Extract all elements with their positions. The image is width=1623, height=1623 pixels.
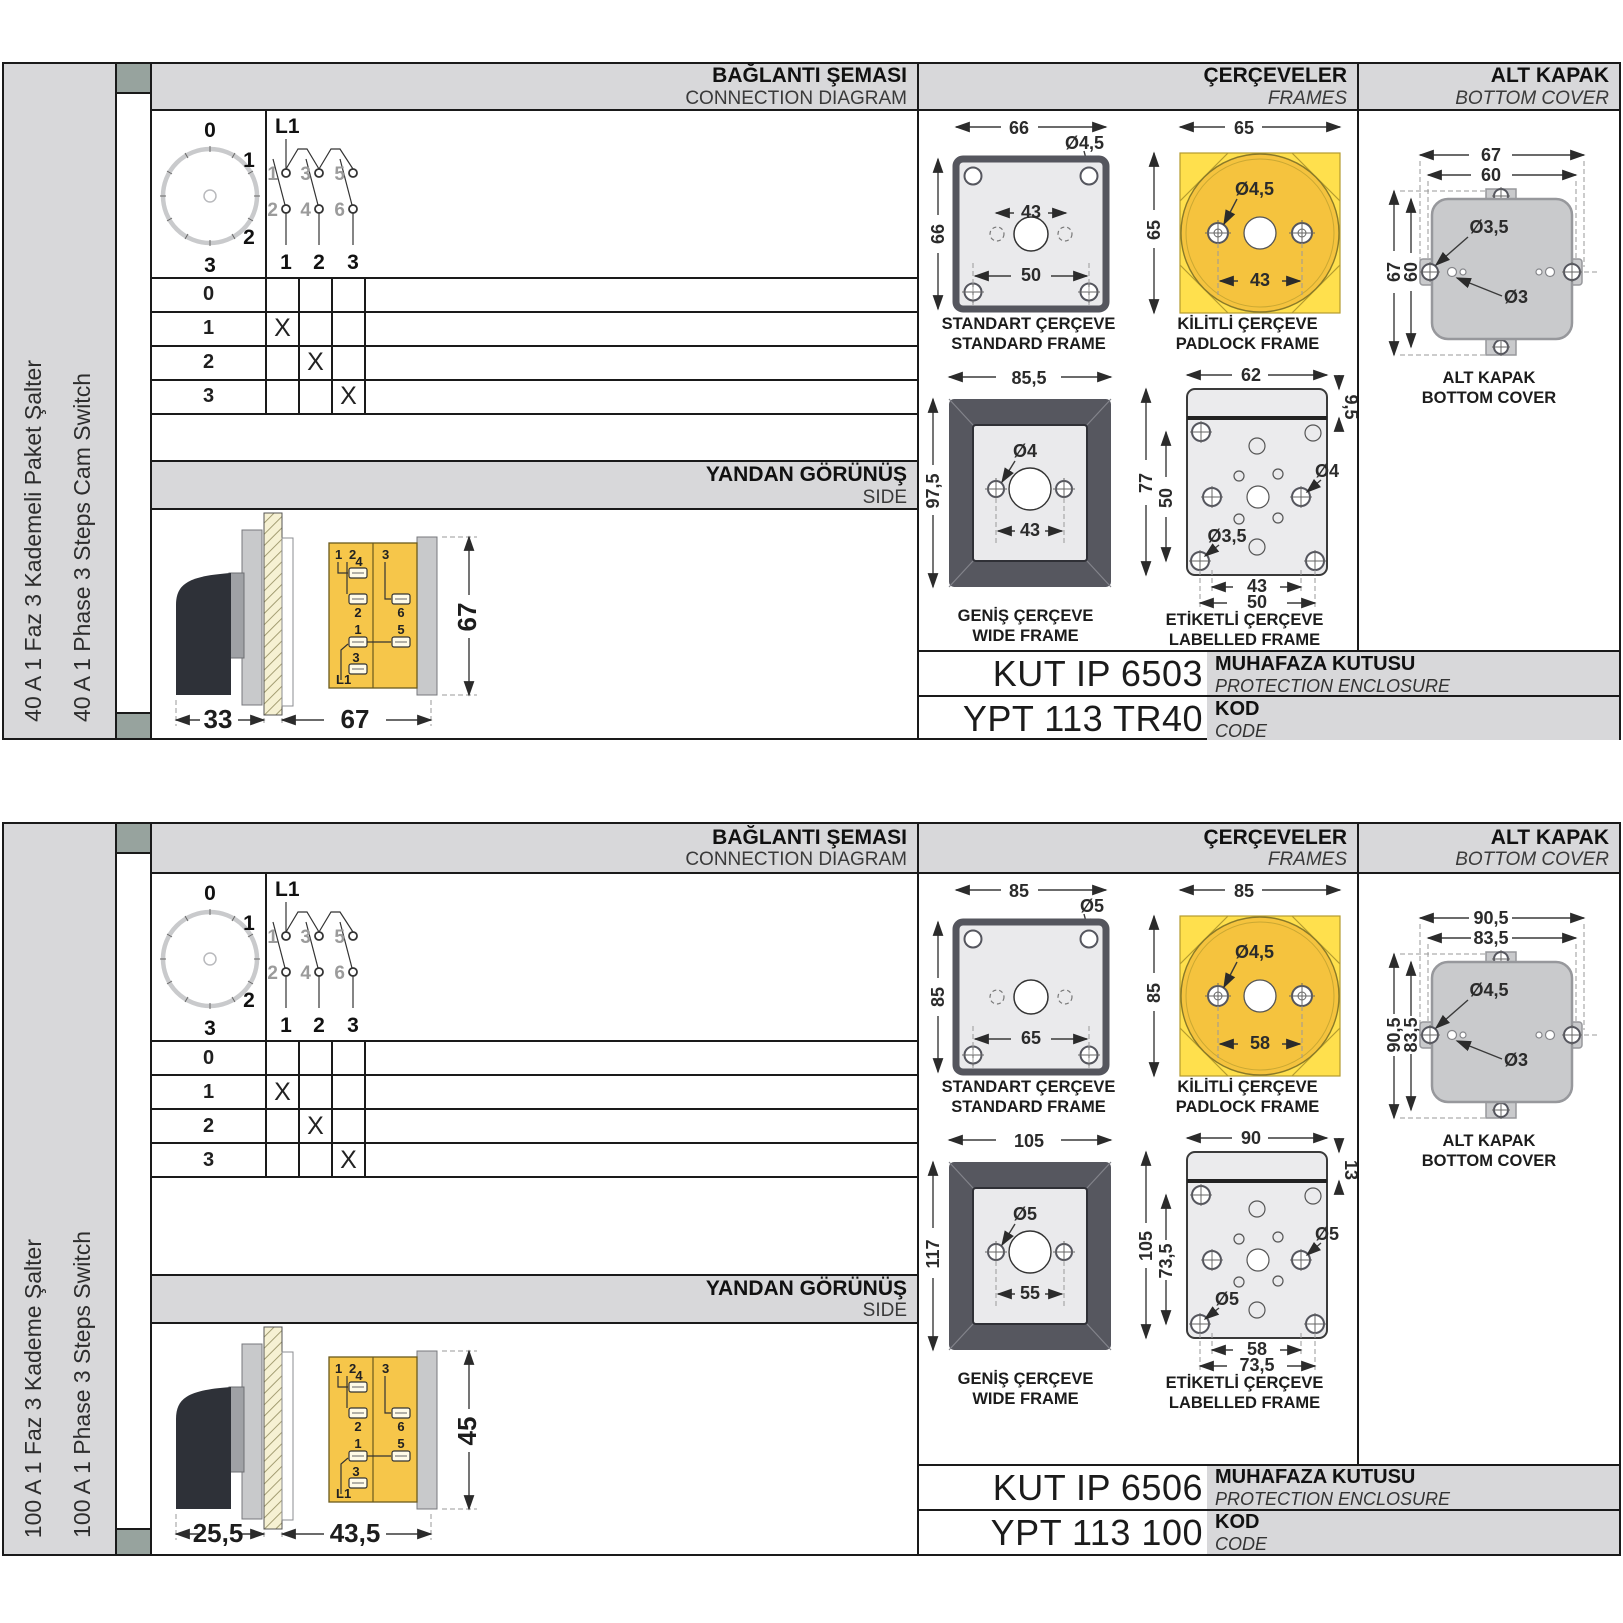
header-bottom-cover: ALT KAPAK BOTTOM COVER bbox=[1359, 64, 1619, 109]
svg-text:33: 33 bbox=[204, 704, 233, 734]
product-title-english: 100 A 1 Phase 3 Steps Switch bbox=[69, 1231, 96, 1538]
svg-text:5: 5 bbox=[334, 164, 345, 185]
frames-column: 85 Ø5 85 bbox=[919, 874, 1359, 1464]
labelled-frame-cell: 62 77 50 bbox=[1132, 361, 1357, 651]
svg-text:Ø5: Ø5 bbox=[1080, 896, 1104, 916]
product-label-tr: KOD bbox=[1215, 698, 1611, 721]
header-connection-diagram: BAĞLANTI ŞEMASI CONNECTION DIAGRAM bbox=[152, 64, 919, 109]
binder-strip bbox=[117, 64, 152, 738]
standard-frame-cell: 66 Ø4,5 66 bbox=[919, 111, 1138, 361]
svg-text:1: 1 bbox=[267, 927, 278, 948]
svg-text:73,5: 73,5 bbox=[1239, 1355, 1274, 1374]
contact-schematic-cell: L1 1 bbox=[267, 111, 917, 277]
rotary-dial-diagram: 0 1 2 3 bbox=[152, 111, 265, 277]
product-label-en: CODE bbox=[1215, 721, 1611, 742]
svg-text:62: 62 bbox=[1241, 365, 1261, 385]
svg-text:4: 4 bbox=[355, 1368, 363, 1383]
truth-table-row: 0 bbox=[152, 1042, 917, 1076]
svg-text:66: 66 bbox=[928, 224, 948, 244]
svg-text:4: 4 bbox=[300, 963, 311, 984]
svg-text:9,5: 9,5 bbox=[1341, 394, 1357, 419]
svg-text:Ø5: Ø5 bbox=[1215, 1289, 1239, 1309]
svg-text:65: 65 bbox=[1144, 220, 1164, 240]
padlock-frame-cell: 65 65 bbox=[1138, 111, 1357, 361]
svg-text:1: 1 bbox=[280, 251, 292, 274]
svg-text:90,5: 90,5 bbox=[1473, 908, 1508, 928]
side-header-tr: YANDAN GÖRÜNÜŞ bbox=[706, 1277, 907, 1301]
contact-mark bbox=[300, 381, 333, 413]
standard-frame-caption: STANDART ÇERÇEVE STANDARD FRAME bbox=[942, 1078, 1116, 1118]
contact-mark bbox=[300, 279, 333, 311]
side-header-en: SIDE bbox=[863, 1300, 907, 1321]
header-frames-en: FRAMES bbox=[1268, 849, 1347, 870]
padlock-frame-caption: KİLİTLİ ÇERÇEVE PADLOCK FRAME bbox=[1176, 315, 1320, 355]
header-frames: ÇERÇEVELER FRAMES bbox=[919, 824, 1359, 872]
product-sidebar: 100 A 1 Faz 3 Kademe Şalter 100 A 1 Phas… bbox=[4, 824, 117, 1554]
svg-text:5: 5 bbox=[397, 622, 404, 637]
svg-text:3: 3 bbox=[382, 547, 389, 562]
header-connection-tr: BAĞLANTI ŞEMASI bbox=[712, 826, 907, 850]
padlock-frame-cell: 85 85 bbox=[1138, 874, 1357, 1124]
svg-text:L1: L1 bbox=[275, 115, 300, 138]
header-connection-tr: BAĞLANTI ŞEMASI bbox=[712, 64, 907, 88]
enclosure-label-en: PROTECTION ENCLOSURE bbox=[1215, 676, 1611, 697]
svg-text:Ø4: Ø4 bbox=[1013, 441, 1037, 461]
svg-text:45: 45 bbox=[452, 1417, 482, 1446]
svg-text:Ø4,5: Ø4,5 bbox=[1469, 980, 1508, 1000]
svg-text:1: 1 bbox=[335, 547, 342, 562]
svg-text:3: 3 bbox=[347, 1014, 359, 1037]
svg-text:60: 60 bbox=[1481, 165, 1501, 185]
sheet-main: BAĞLANTI ŞEMASI CONNECTION DIAGRAM ÇERÇE… bbox=[152, 824, 1619, 1554]
svg-text:0: 0 bbox=[204, 119, 216, 142]
column-headers: BAĞLANTI ŞEMASI CONNECTION DIAGRAM ÇERÇE… bbox=[152, 64, 1619, 111]
svg-text:1: 1 bbox=[354, 1436, 361, 1451]
labelled-frame-cell: 90 105 73,5 bbox=[1132, 1124, 1357, 1464]
svg-text:85: 85 bbox=[1144, 983, 1164, 1003]
header-connection-en: CONNECTION DIAGRAM bbox=[685, 849, 907, 870]
svg-text:6: 6 bbox=[334, 200, 345, 221]
labelled-frame-drawing: 62 77 50 bbox=[1132, 365, 1357, 611]
svg-text:3: 3 bbox=[300, 927, 311, 948]
svg-text:2: 2 bbox=[243, 989, 255, 1012]
wide-frame-cell: 85,5 97,5 bbox=[919, 361, 1132, 651]
truth-table-spacer bbox=[366, 1042, 917, 1074]
svg-text:83,5: 83,5 bbox=[1401, 1017, 1421, 1052]
svg-text:3: 3 bbox=[204, 254, 216, 277]
svg-text:Ø3,5: Ø3,5 bbox=[1207, 526, 1246, 546]
truth-table-spacer bbox=[366, 313, 917, 345]
svg-text:Ø5: Ø5 bbox=[1315, 1224, 1339, 1244]
svg-text:85: 85 bbox=[928, 987, 948, 1007]
wide-frame-caption: GENİŞ ÇERÇEVE WIDE FRAME bbox=[958, 607, 1094, 647]
bottom-cover-column: 90,5 83,5 90,5 83,5 bbox=[1359, 874, 1619, 1464]
svg-text:43: 43 bbox=[1019, 520, 1039, 540]
svg-text:3: 3 bbox=[382, 1361, 389, 1376]
labelled-frame-caption: ETİKETLİ ÇERÇEVE LABELLED FRAME bbox=[1166, 1374, 1324, 1414]
contact-mark: X bbox=[300, 1110, 333, 1142]
side-view-cell: 1 2 4 2 1 3 L1 3 6 5 bbox=[152, 1324, 917, 1554]
truth-table-spacer bbox=[366, 279, 917, 311]
svg-text:66: 66 bbox=[1009, 118, 1029, 138]
wide-frame-drawing: 85,5 97,5 bbox=[921, 365, 1131, 607]
contact-mark: X bbox=[267, 1076, 300, 1108]
svg-text:67: 67 bbox=[452, 603, 482, 632]
svg-text:6: 6 bbox=[334, 963, 345, 984]
svg-text:50: 50 bbox=[1021, 265, 1041, 285]
svg-text:2: 2 bbox=[267, 963, 278, 984]
contact-mark bbox=[300, 1144, 333, 1176]
truth-table-row: 3 X bbox=[152, 381, 917, 415]
truth-table-spacer bbox=[366, 381, 917, 413]
bottom-cover-caption: ALT KAPAK BOTTOM COVER bbox=[1422, 369, 1556, 409]
contact-mark bbox=[267, 381, 300, 413]
product-title-turkish: 100 A 1 Faz 3 Kademe Şalter bbox=[20, 1239, 47, 1538]
product-label-en: CODE bbox=[1215, 1534, 1611, 1555]
svg-text:3: 3 bbox=[352, 650, 359, 665]
header-cover-en: BOTTOM COVER bbox=[1455, 88, 1609, 109]
position-label: 1 bbox=[152, 1076, 267, 1108]
wide-frame-cell: 105 117 bbox=[919, 1124, 1132, 1464]
side-header-en: SIDE bbox=[863, 487, 907, 508]
binder-square-top bbox=[117, 64, 150, 94]
svg-text:43: 43 bbox=[1021, 202, 1041, 222]
truth-table-row: 2 X bbox=[152, 1110, 917, 1144]
svg-text:5: 5 bbox=[334, 927, 345, 948]
rotary-dial-diagram: 0 1 2 3 bbox=[152, 874, 265, 1040]
svg-text:Ø3,5: Ø3,5 bbox=[1469, 217, 1508, 237]
header-cover-tr: ALT KAPAK bbox=[1491, 826, 1609, 850]
svg-text:3: 3 bbox=[352, 1464, 359, 1479]
bottom-cover-caption: ALT KAPAK BOTTOM COVER bbox=[1422, 1132, 1556, 1172]
truth-table-spacer bbox=[366, 1110, 917, 1142]
svg-text:1: 1 bbox=[267, 164, 278, 185]
standard-frame-cell: 85 Ø5 85 bbox=[919, 874, 1138, 1124]
contact-mark bbox=[333, 1076, 366, 1108]
side-header-tr: YANDAN GÖRÜNÜŞ bbox=[706, 463, 907, 487]
svg-text:1: 1 bbox=[335, 1361, 342, 1376]
svg-text:L1: L1 bbox=[336, 672, 351, 687]
svg-text:43,5: 43,5 bbox=[330, 1518, 381, 1548]
contact-mark bbox=[333, 313, 366, 345]
svg-text:2: 2 bbox=[267, 200, 278, 221]
header-connection-diagram: BAĞLANTI ŞEMASI CONNECTION DIAGRAM bbox=[152, 824, 919, 872]
product-title-english: 40 A 1 Phase 3 Steps Cam Switch bbox=[69, 373, 96, 722]
enclosure-code-row: KUT IP 6503 MUHAFAZA KUTUSU PROTECTION E… bbox=[919, 650, 1619, 695]
product-code: YPT 113 TR40 bbox=[919, 697, 1207, 740]
header-frames: ÇERÇEVELER FRAMES bbox=[919, 64, 1359, 109]
side-view-header: YANDAN GÖRÜNÜŞ SIDE bbox=[152, 460, 917, 510]
svg-text:117: 117 bbox=[923, 1239, 943, 1268]
svg-text:2: 2 bbox=[354, 605, 361, 620]
svg-text:50: 50 bbox=[1156, 488, 1176, 508]
svg-text:25,5: 25,5 bbox=[193, 1518, 244, 1548]
svg-text:Ø4,5: Ø4,5 bbox=[1235, 942, 1274, 962]
padlock-frame-drawing: 85 85 bbox=[1140, 878, 1355, 1078]
column-headers: BAĞLANTI ŞEMASI CONNECTION DIAGRAM ÇERÇE… bbox=[152, 824, 1619, 874]
svg-text:2: 2 bbox=[243, 226, 255, 249]
header-cover-tr: ALT KAPAK bbox=[1491, 64, 1609, 88]
svg-text:Ø5: Ø5 bbox=[1013, 1204, 1037, 1224]
svg-text:3: 3 bbox=[347, 251, 359, 274]
position-label: 2 bbox=[152, 347, 267, 379]
svg-text:6: 6 bbox=[397, 1419, 404, 1434]
svg-text:13: 13 bbox=[1341, 1160, 1357, 1180]
product-code-row: YPT 113 100 KOD CODE bbox=[919, 1509, 1619, 1554]
truth-table-spacer bbox=[366, 1076, 917, 1108]
enclosure-code: KUT IP 6506 bbox=[919, 1466, 1207, 1509]
contact-schematic: L1 1 bbox=[267, 874, 917, 1040]
svg-text:97,5: 97,5 bbox=[923, 473, 943, 508]
contact-mark bbox=[333, 347, 366, 379]
product-section-100a: 100 A 1 Faz 3 Kademe Şalter 100 A 1 Phas… bbox=[2, 822, 1621, 1556]
svg-text:90: 90 bbox=[1241, 1128, 1261, 1148]
sheet-main: BAĞLANTI ŞEMASI CONNECTION DIAGRAM ÇERÇE… bbox=[152, 64, 1619, 738]
svg-text:5: 5 bbox=[397, 1436, 404, 1451]
header-cover-en: BOTTOM COVER bbox=[1455, 849, 1609, 870]
svg-text:4: 4 bbox=[300, 200, 311, 221]
svg-text:1: 1 bbox=[243, 149, 255, 172]
enclosure-label-en: PROTECTION ENCLOSURE bbox=[1215, 1489, 1611, 1510]
svg-text:3: 3 bbox=[300, 164, 311, 185]
frames-and-cover-area: 66 Ø4,5 66 bbox=[919, 111, 1619, 741]
padlock-frame-caption: KİLİTLİ ÇERÇEVE PADLOCK FRAME bbox=[1176, 1078, 1320, 1118]
svg-text:60: 60 bbox=[1401, 262, 1421, 282]
spacer bbox=[152, 415, 917, 461]
spacer bbox=[152, 1178, 917, 1274]
bottom-cover-drawing: 90,5 83,5 90,5 83,5 bbox=[1364, 904, 1614, 1132]
truth-table-row: 1 X bbox=[152, 1076, 917, 1110]
svg-text:0: 0 bbox=[204, 882, 216, 905]
svg-text:3: 3 bbox=[204, 1017, 216, 1040]
padlock-frame-drawing: 65 65 bbox=[1140, 115, 1355, 315]
contact-schematic: L1 1 bbox=[267, 111, 917, 277]
product-code-label: KOD CODE bbox=[1207, 1511, 1619, 1554]
bottom-cover-drawing: 67 60 67 60 bbox=[1364, 141, 1614, 369]
header-connection-en: CONNECTION DIAGRAM bbox=[685, 88, 907, 109]
contact-mark bbox=[267, 347, 300, 379]
enclosure-label: MUHAFAZA KUTUSU PROTECTION ENCLOSURE bbox=[1207, 1466, 1619, 1509]
svg-text:85: 85 bbox=[1009, 881, 1029, 901]
binder-square-bottom bbox=[117, 1528, 150, 1554]
contact-mark bbox=[267, 1110, 300, 1142]
side-view-drawing: 1 2 4 2 1 3 L1 3 6 5 bbox=[152, 510, 917, 740]
svg-text:1: 1 bbox=[243, 912, 255, 935]
contact-mark bbox=[300, 1042, 333, 1074]
product-label-tr: KOD bbox=[1215, 1511, 1611, 1534]
connection-diagram-column: 0 1 2 3 L1 bbox=[152, 874, 919, 1554]
truth-table-row: 1 X bbox=[152, 313, 917, 347]
contact-mark bbox=[267, 1042, 300, 1074]
svg-text:55: 55 bbox=[1019, 1283, 1039, 1303]
header-frames-tr: ÇERÇEVELER bbox=[1203, 64, 1347, 88]
svg-text:L1: L1 bbox=[275, 878, 300, 901]
labelled-frame-caption: ETİKETLİ ÇERÇEVE LABELLED FRAME bbox=[1166, 611, 1324, 651]
position-label: 2 bbox=[152, 1110, 267, 1142]
contact-schematic-cell: L1 1 bbox=[267, 874, 917, 1040]
enclosure-label-tr: MUHAFAZA KUTUSU bbox=[1215, 1466, 1611, 1489]
svg-text:85: 85 bbox=[1234, 881, 1254, 901]
wide-frame-caption: GENİŞ ÇERÇEVE WIDE FRAME bbox=[958, 1370, 1094, 1410]
binder-square-bottom bbox=[117, 712, 150, 738]
product-title-turkish: 40 A 1 Faz 3 Kademeli Paket Şalter bbox=[20, 360, 47, 722]
svg-text:67: 67 bbox=[341, 704, 370, 734]
svg-text:Ø4,5: Ø4,5 bbox=[1235, 179, 1274, 199]
truth-table-spacer bbox=[366, 1144, 917, 1176]
svg-text:43: 43 bbox=[1250, 270, 1270, 290]
header-frames-tr: ÇERÇEVELER bbox=[1203, 826, 1347, 850]
enclosure-code: KUT IP 6503 bbox=[919, 652, 1207, 695]
svg-text:2: 2 bbox=[313, 251, 325, 274]
product-code: YPT 113 100 bbox=[919, 1511, 1207, 1554]
switch-dial-cell: 0 1 2 3 bbox=[152, 874, 267, 1040]
frames-column: 66 Ø4,5 66 bbox=[919, 111, 1359, 651]
product-code-label: KOD CODE bbox=[1207, 697, 1619, 740]
contact-mark bbox=[333, 1110, 366, 1142]
svg-text:50: 50 bbox=[1247, 592, 1267, 611]
enclosure-label: MUHAFAZA KUTUSU PROTECTION ENCLOSURE bbox=[1207, 652, 1619, 695]
svg-text:6: 6 bbox=[397, 605, 404, 620]
labelled-frame-drawing: 90 105 73,5 bbox=[1132, 1128, 1357, 1374]
binder-square-top bbox=[117, 824, 150, 854]
svg-text:67: 67 bbox=[1481, 145, 1501, 165]
svg-text:Ø3: Ø3 bbox=[1504, 287, 1528, 307]
standard-frame-caption: STANDART ÇERÇEVE STANDARD FRAME bbox=[942, 315, 1116, 355]
side-view-cell: 1 2 4 2 1 3 L1 3 6 5 bbox=[152, 510, 917, 740]
truth-table-row: 2 X bbox=[152, 347, 917, 381]
svg-text:58: 58 bbox=[1250, 1033, 1270, 1053]
svg-text:2: 2 bbox=[313, 1014, 325, 1037]
svg-text:83,5: 83,5 bbox=[1473, 928, 1508, 948]
svg-text:L1: L1 bbox=[336, 1486, 351, 1501]
product-section-40a: 40 A 1 Faz 3 Kademeli Paket Şalter 40 A … bbox=[2, 62, 1621, 740]
enclosure-code-row: KUT IP 6506 MUHAFAZA KUTUSU PROTECTION E… bbox=[919, 1464, 1619, 1509]
svg-text:1: 1 bbox=[280, 1014, 292, 1037]
contact-mark bbox=[333, 279, 366, 311]
switch-dial-cell: 0 1 2 3 bbox=[152, 111, 267, 277]
svg-text:105: 105 bbox=[1013, 1131, 1043, 1151]
connection-diagram-column: 0 1 2 3 L1 bbox=[152, 111, 919, 741]
binder-strip bbox=[117, 824, 152, 1554]
svg-text:85,5: 85,5 bbox=[1011, 368, 1046, 388]
contact-mark: X bbox=[300, 347, 333, 379]
header-frames-en: FRAMES bbox=[1268, 88, 1347, 109]
contact-mark bbox=[300, 313, 333, 345]
position-label: 0 bbox=[152, 279, 267, 311]
svg-text:4: 4 bbox=[355, 554, 363, 569]
svg-text:65: 65 bbox=[1234, 118, 1254, 138]
enclosure-label-tr: MUHAFAZA KUTUSU bbox=[1215, 653, 1611, 676]
contact-mark: X bbox=[333, 1144, 366, 1176]
contact-mark bbox=[267, 279, 300, 311]
contact-mark bbox=[267, 1144, 300, 1176]
position-label: 1 bbox=[152, 313, 267, 345]
header-bottom-cover: ALT KAPAK BOTTOM COVER bbox=[1359, 824, 1619, 872]
contact-mark: X bbox=[333, 381, 366, 413]
svg-text:73,5: 73,5 bbox=[1156, 1243, 1176, 1278]
svg-text:77: 77 bbox=[1136, 473, 1156, 493]
position-label: 0 bbox=[152, 1042, 267, 1074]
position-label: 3 bbox=[152, 1144, 267, 1176]
position-label: 3 bbox=[152, 381, 267, 413]
standard-frame-drawing: 66 Ø4,5 66 bbox=[926, 115, 1131, 315]
contact-mark bbox=[300, 1076, 333, 1108]
product-code-row: YPT 113 TR40 KOD CODE bbox=[919, 695, 1619, 740]
svg-text:2: 2 bbox=[354, 1419, 361, 1434]
bottom-cover-column: 67 60 67 60 bbox=[1359, 111, 1619, 651]
side-view-drawing: 1 2 4 2 1 3 L1 3 6 5 bbox=[152, 1324, 917, 1554]
contact-mark bbox=[333, 1042, 366, 1074]
svg-text:65: 65 bbox=[1021, 1028, 1041, 1048]
standard-frame-drawing: 85 Ø5 85 bbox=[926, 878, 1131, 1078]
svg-text:Ø4,5: Ø4,5 bbox=[1065, 133, 1104, 153]
side-view-header: YANDAN GÖRÜNÜŞ SIDE bbox=[152, 1274, 917, 1324]
svg-text:Ø3: Ø3 bbox=[1504, 1050, 1528, 1070]
wide-frame-drawing: 105 117 bbox=[921, 1128, 1131, 1370]
product-sidebar: 40 A 1 Faz 3 Kademeli Paket Şalter 40 A … bbox=[4, 64, 117, 738]
svg-text:Ø4: Ø4 bbox=[1315, 461, 1339, 481]
svg-text:1: 1 bbox=[354, 622, 361, 637]
truth-table-row: 3 X bbox=[152, 1144, 917, 1178]
contact-mark: X bbox=[267, 313, 300, 345]
svg-text:105: 105 bbox=[1136, 1231, 1156, 1261]
truth-table-row: 0 bbox=[152, 279, 917, 313]
frames-and-cover-area: 85 Ø5 85 bbox=[919, 874, 1619, 1554]
truth-table-spacer bbox=[366, 347, 917, 379]
